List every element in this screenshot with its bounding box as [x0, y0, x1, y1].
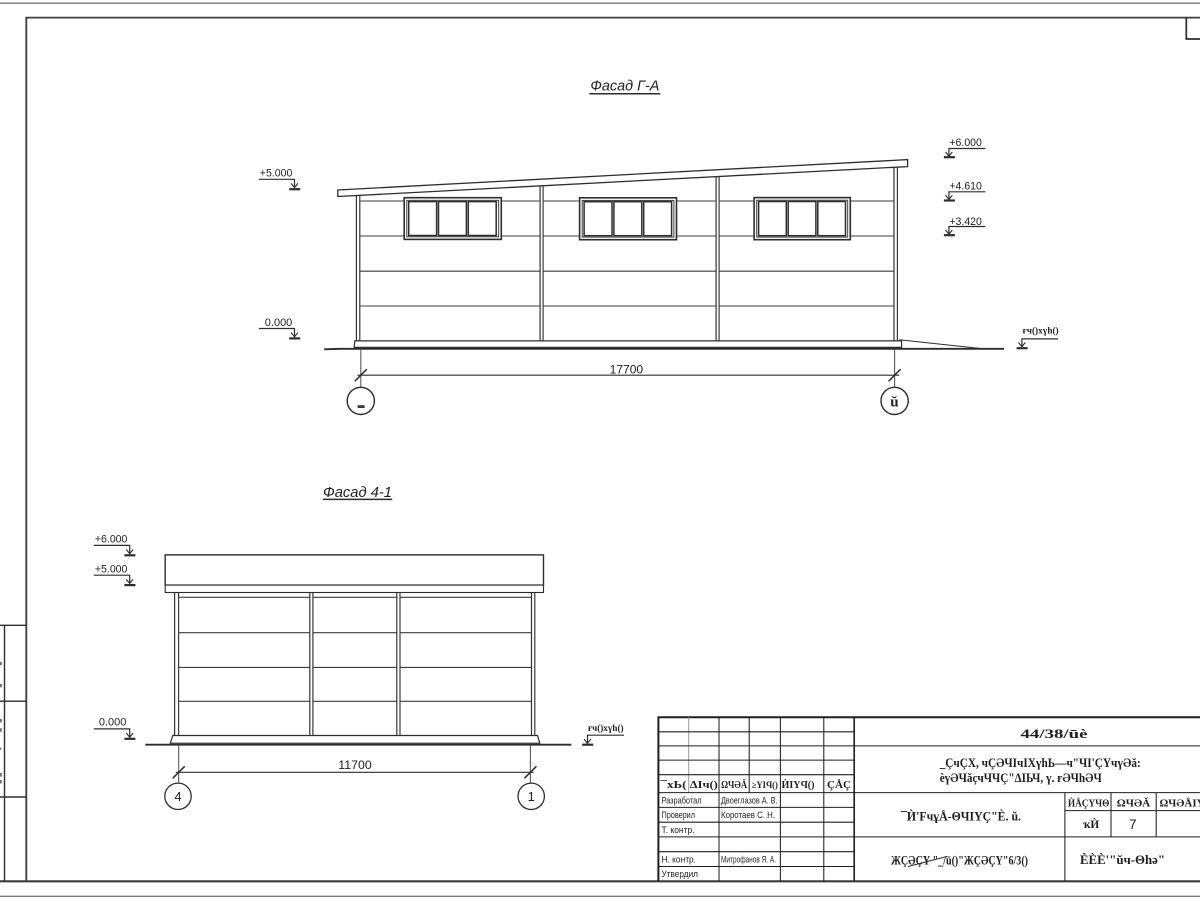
- svg-text:ѐүӘЧăçчЧЧÇ"ΔΙЬЧ, ү. ғӘЧһӘЧ: ѐүӘЧăçчЧЧÇ"ΔΙЬЧ, ү. ғӘЧһӘЧ: [940, 771, 1102, 785]
- svg-text:Разработал: Разработал: [662, 795, 702, 806]
- svg-text:ΩЧӘÅΙΥ: ΩЧӘÅΙΥ: [1160, 797, 1200, 809]
- svg-text:7: 7: [1129, 817, 1137, 832]
- svg-text:Двоеглазов А. В.: Двоеглазов А. В.: [721, 795, 778, 805]
- svg-text:Фасад Г-А: Фасад Г-А: [590, 79, 659, 95]
- svg-text:ÈÈÈ'"ŭч-Θhә": ÈÈÈ'"ŭч-Θhә": [1080, 853, 1165, 867]
- svg-text:Коротаев С. Н.: Коротаев С. Н.: [721, 810, 775, 820]
- svg-text:+5.000: +5.000: [260, 168, 293, 180]
- svg-text:11700: 11700: [338, 758, 372, 772]
- svg-text:Т. контр.: Т. контр.: [662, 825, 695, 836]
- svg-text:1: 1: [528, 789, 535, 804]
- svg-text:ÇÅÇ: ÇÅÇ: [827, 779, 851, 791]
- svg-text:ΩЧӘĂ: ΩЧӘĂ: [1117, 797, 1151, 809]
- svg-text:≥ΥΙϤ(): ≥ΥΙϤ(): [752, 780, 778, 790]
- svg-text:17700: 17700: [610, 362, 644, 376]
- svg-text:Фасад 4-1: Фасад 4-1: [323, 485, 392, 501]
- svg-text:_ÇчÇХ, чÇӘЧΙчΙХүhЬ—ч"ЧΙ'ÇΥчүӘă: _ÇчÇХ, чÇӘЧΙчΙХүhЬ—ч"ЧΙ'ÇΥчүӘă:: [939, 756, 1141, 770]
- svg-text:ΔΙч(): ΔΙч(): [690, 779, 718, 791]
- svg-text:0.000: 0.000: [265, 317, 293, 329]
- svg-text:Проверил: Проверил: [662, 810, 696, 821]
- svg-text:+6.000: +6.000: [95, 534, 128, 546]
- svg-text:ғч()хүh(): ғч()хүh(): [588, 723, 624, 733]
- svg-text:ғч()хүh(): ғч()хүh(): [1023, 326, 1059, 336]
- svg-text:Н. контр.: Н. контр.: [662, 854, 697, 865]
- svg-text:Утвердил: Утвердил: [662, 869, 699, 880]
- svg-text:ЍΙΥϤ(): ЍΙΥϤ(): [782, 779, 815, 791]
- svg-text:+6.000: +6.000: [949, 137, 982, 149]
- svg-text:¯хЬ(: ¯хЬ(: [659, 779, 687, 791]
- svg-text:ҡЍ: ҡЍ: [1083, 817, 1100, 831]
- svg-text:ŭ: ŭ: [890, 395, 898, 411]
- svg-text:+4.610: +4.610: [949, 181, 982, 193]
- svg-text:Митрофанов Я. А.: Митрофанов Я. А.: [721, 854, 776, 864]
- svg-text:+5.000: +5.000: [95, 564, 128, 576]
- svg-text:44/38/ūè: 44/38/ūè: [1021, 726, 1088, 741]
- svg-text:ЍÅÇΥЧΘ: ЍÅÇΥЧΘ: [1068, 797, 1110, 809]
- svg-text:¯Ѝ'FчұÅ-ΘЧΙΥÇ"È. ŭ.: ¯Ѝ'FчұÅ-ΘЧΙΥÇ"È. ŭ.: [900, 809, 1021, 824]
- svg-text:0.000: 0.000: [99, 717, 127, 729]
- svg-text:4: 4: [174, 789, 181, 804]
- svg-text:ΩЧӘĂ: ΩЧӘĂ: [721, 779, 747, 791]
